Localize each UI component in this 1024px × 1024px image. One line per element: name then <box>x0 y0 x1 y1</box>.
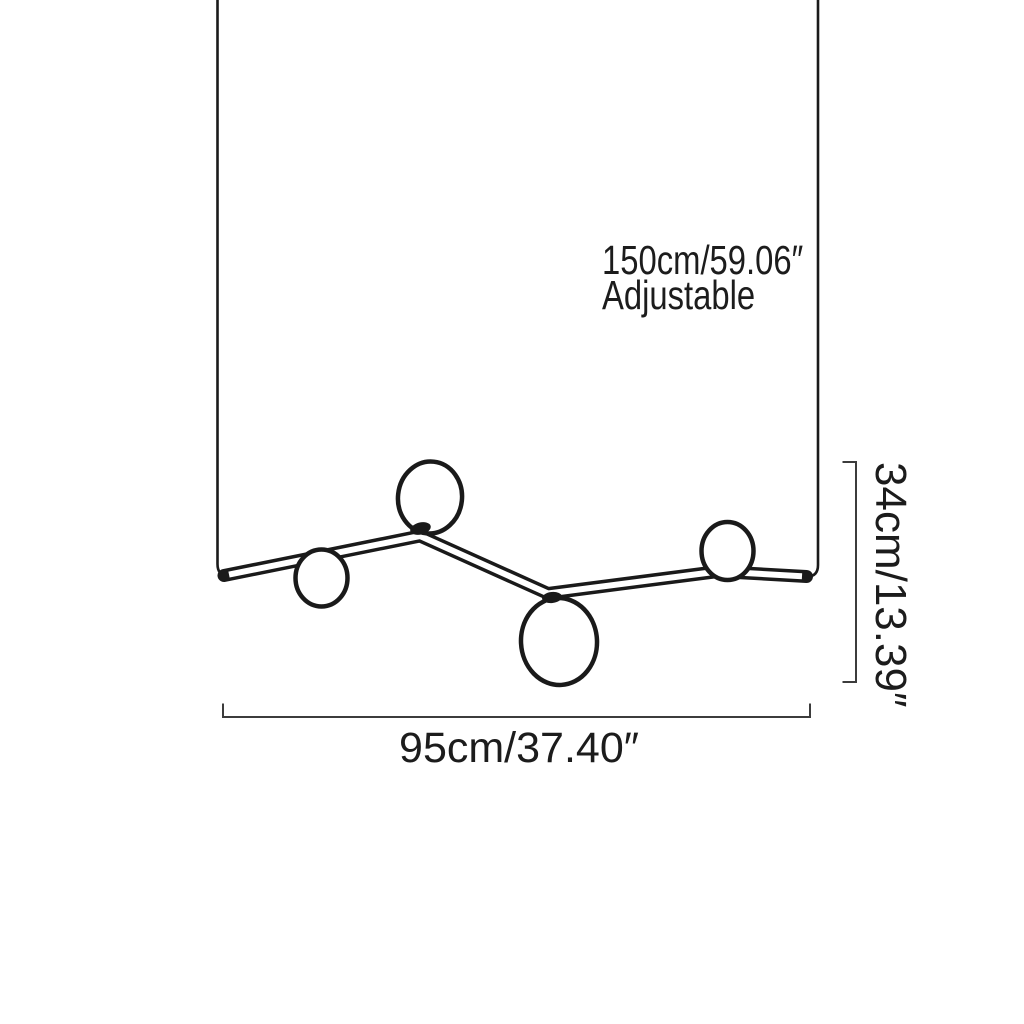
glass-globe-1 <box>296 550 348 607</box>
suspension-length-label: 150cm/59.06″ Adjustable <box>602 243 803 313</box>
width-dimension-line <box>223 704 810 718</box>
width-label: 95cm/37.40″ <box>399 724 639 773</box>
suspension-adjustable-label: Adjustable <box>602 278 803 313</box>
dimension-diagram: 150cm/59.06″ Adjustable 34cm/13.39″ 95cm… <box>0 0 1024 1024</box>
glass-globe-3 <box>519 596 599 687</box>
suspension-cable-left <box>218 0 228 576</box>
drop-height-label: 34cm/13.39″ <box>868 462 912 708</box>
glass-globe-4 <box>702 522 754 580</box>
suspension-cable-right <box>808 0 818 577</box>
drop-dimension-bracket <box>843 462 857 682</box>
